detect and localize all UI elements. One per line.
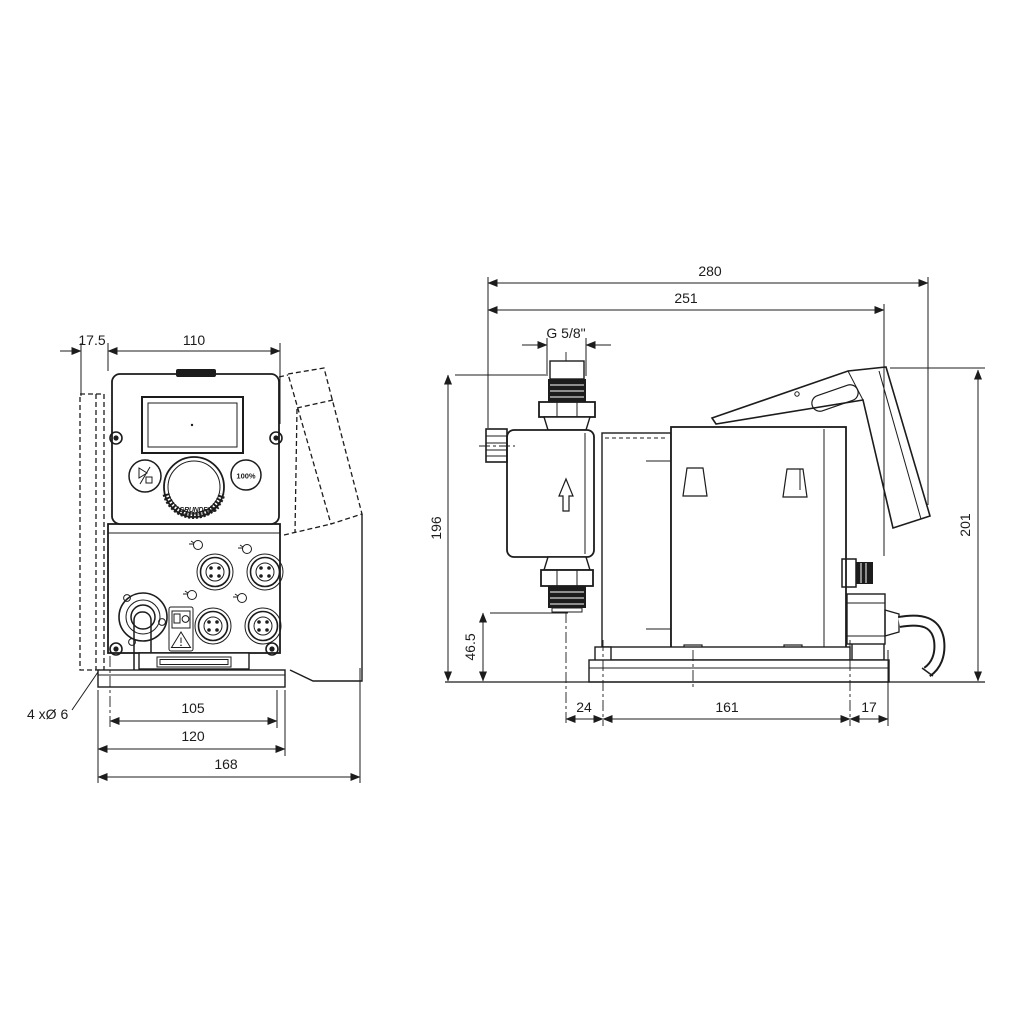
brand-logo: GRUNDFOS <box>179 505 219 514</box>
dim-thread: G 5/8" <box>546 325 585 341</box>
head-body <box>507 430 594 557</box>
top-tab <box>176 369 216 377</box>
dim-280: 280 <box>698 263 722 279</box>
outlet-pipe <box>550 361 584 379</box>
control-panel: 100% GRUNDFOS <box>110 369 282 524</box>
inlet-thread <box>548 586 586 608</box>
outlet-nut <box>539 402 595 417</box>
housing-front-section <box>602 433 671 652</box>
dim-168: 168 <box>214 756 238 772</box>
dim-110: 110 <box>183 332 206 348</box>
dim-196: 196 <box>428 516 444 540</box>
side-view: 280 251 G 5/8" 196 46.5 201 <box>428 263 985 726</box>
dim-161: 161 <box>715 699 739 715</box>
wall-plate-hidden <box>80 394 104 670</box>
dim-17: 17 <box>861 699 877 715</box>
pump-dimensional-drawing: 100% GRUNDFOS <box>0 0 1024 1024</box>
dim-105: 105 <box>181 700 205 716</box>
holes-note: 4 xØ 6 <box>27 706 68 722</box>
dosing-head <box>479 361 595 612</box>
base-plate-side <box>589 643 889 682</box>
motor-body <box>671 427 846 652</box>
dim-120: 120 <box>181 728 205 744</box>
hundred-percent-label: 100% <box>236 472 256 481</box>
dim-46-5: 46.5 <box>462 633 478 660</box>
dim-201: 201 <box>957 513 973 537</box>
dim-17-5: 17.5 <box>78 332 105 348</box>
front-view: 100% GRUNDFOS <box>27 332 362 783</box>
dim-251: 251 <box>674 290 698 306</box>
hood-handle-slot <box>810 383 861 414</box>
logo-text: GRUNDFOS <box>179 507 217 514</box>
priming-knob[interactable] <box>486 429 507 462</box>
warning-label <box>169 607 193 651</box>
inlet-nut <box>541 570 593 586</box>
hood-hidden-front <box>279 368 362 681</box>
mounting-plate <box>98 653 285 687</box>
dim-24: 24 <box>576 699 592 715</box>
dimensional-drawing-page: 100% GRUNDFOS <box>0 0 1024 1024</box>
